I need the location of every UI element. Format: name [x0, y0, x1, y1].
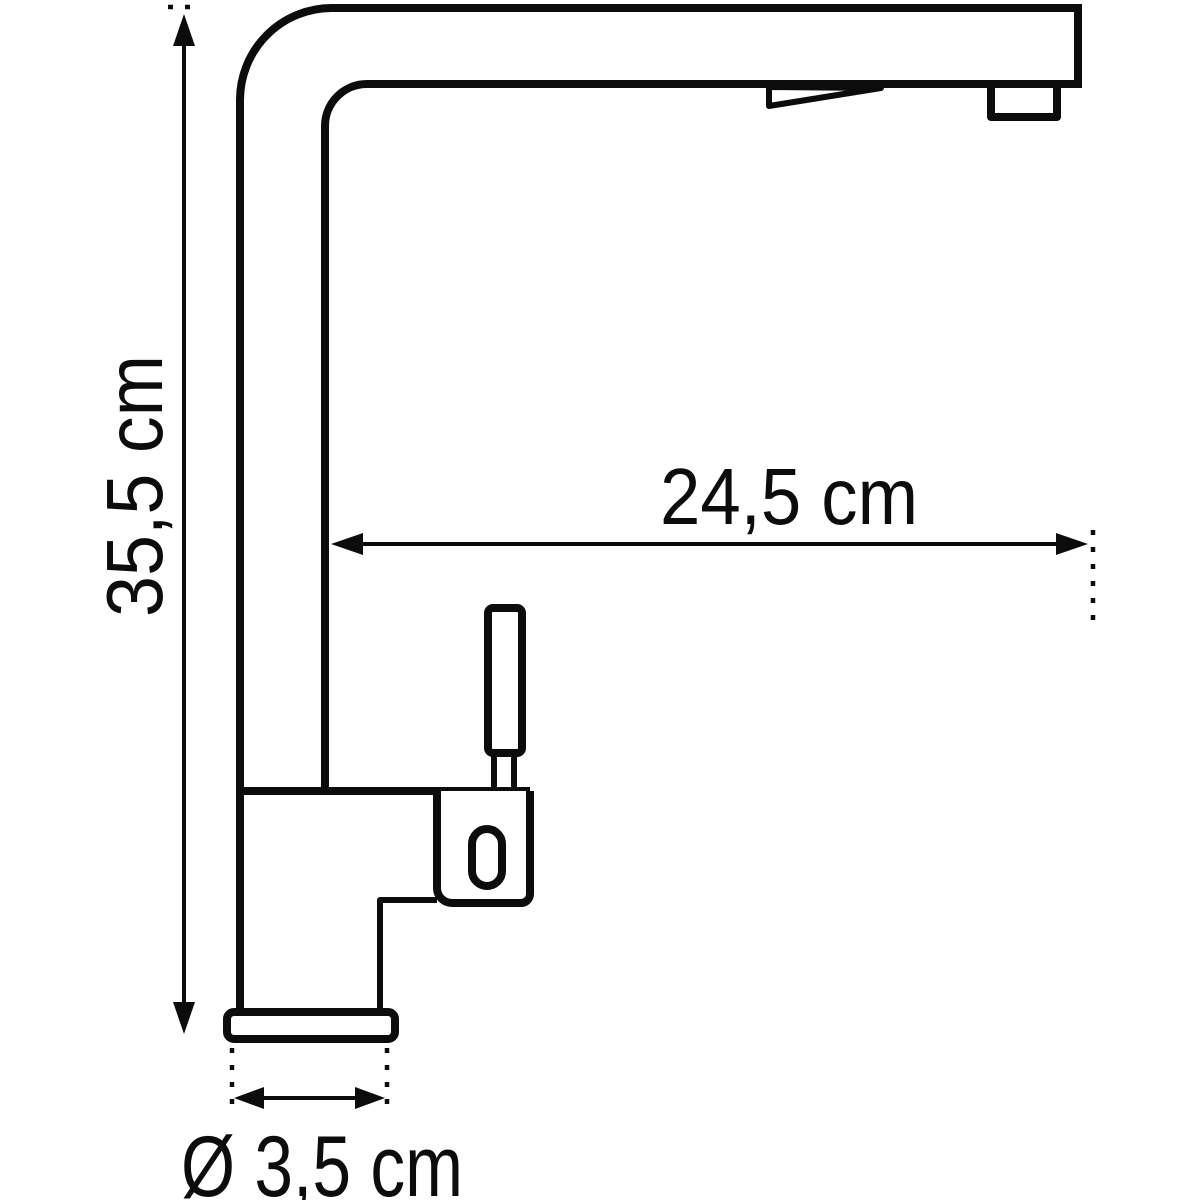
lever-handle	[488, 608, 522, 753]
faucet-dimension-diagram: 35,5 cm 24,5 cm Ø 3,5 cm	[0, 0, 1200, 1200]
height-arrowhead-down	[173, 1002, 195, 1034]
reach-arrowhead-left	[331, 533, 363, 555]
dimension-height: 35,5 cm	[90, 7, 202, 1034]
diameter-arrowhead-right	[355, 1087, 385, 1109]
diameter-arrowhead-left	[234, 1087, 264, 1109]
body-step-edge	[380, 900, 437, 1012]
diameter-dimension-label: Ø 3,5 cm	[181, 1119, 463, 1200]
dimension-base-diameter: Ø 3,5 cm	[181, 1048, 463, 1200]
faucet-inner-contour	[325, 84, 1079, 790]
aerator-outlet	[991, 84, 1057, 117]
faucet-drawing	[227, 4, 1079, 1039]
base-plate	[227, 1012, 395, 1039]
reach-dimension-label: 24,5 cm	[660, 452, 918, 541]
valve-slot-detail	[472, 829, 502, 886]
faucet-diagram-canvas: 35,5 cm 24,5 cm Ø 3,5 cm	[0, 0, 1200, 1200]
dimension-reach: 24,5 cm	[331, 452, 1093, 622]
reach-arrowhead-right	[1056, 533, 1088, 555]
height-arrowhead-up	[173, 14, 195, 46]
height-dimension-label: 35,5 cm	[90, 355, 179, 617]
spray-head-seam	[769, 87, 881, 106]
